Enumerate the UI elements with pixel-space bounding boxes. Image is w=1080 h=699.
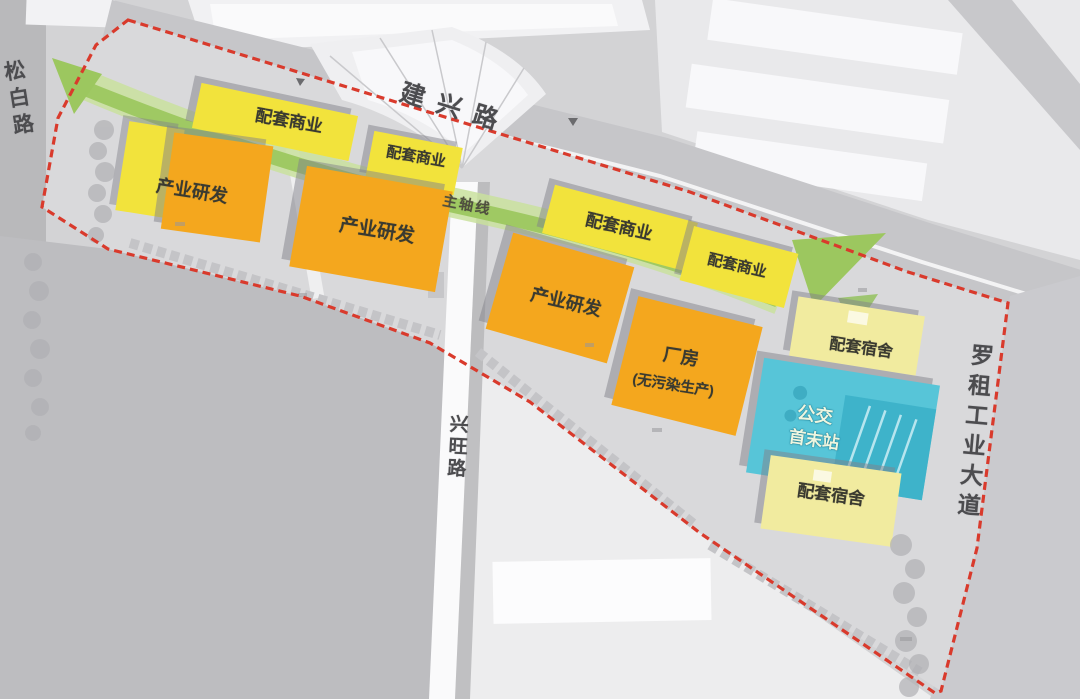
building-label-bus-line1: 公交 — [796, 404, 834, 427]
offsite-building-bottom — [492, 558, 711, 624]
offsite-building-topleft — [26, 0, 115, 28]
site-plan-canvas — [0, 0, 1080, 699]
site-plan: 建兴路 松白路 兴旺路 罗租工业大道 主轴线 配套商业 配套商业 产业研发 产业… — [0, 0, 1080, 699]
road-label-xingwang: 兴旺路 — [445, 414, 467, 481]
